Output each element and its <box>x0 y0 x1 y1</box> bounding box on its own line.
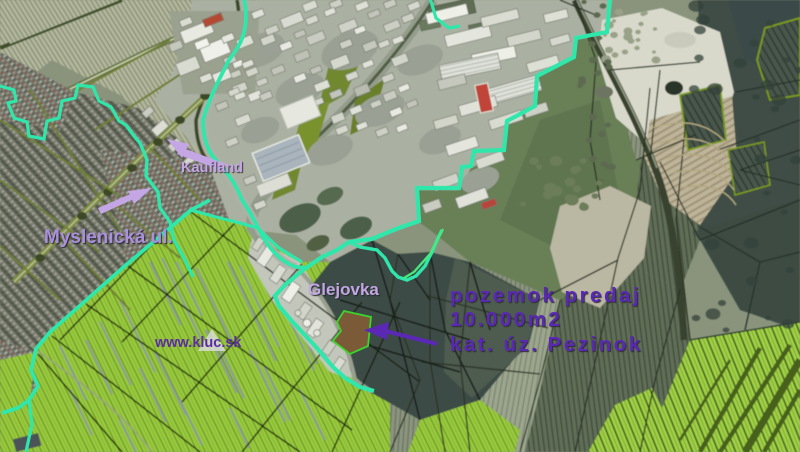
svg-text:kat. úz. Pezinok: kat. úz. Pezinok <box>450 333 643 356</box>
svg-text:pozemok predaj: pozemok predaj <box>450 284 641 307</box>
svg-text:www.kluc.sk: www.kluc.sk <box>154 335 242 351</box>
svg-text:Myslenická ul.: Myslenická ul. <box>44 227 173 248</box>
svg-text:Kaufland: Kaufland <box>181 160 243 176</box>
svg-text:10.000m2: 10.000m2 <box>450 308 562 331</box>
svg-text:Glejovka: Glejovka <box>308 280 379 299</box>
